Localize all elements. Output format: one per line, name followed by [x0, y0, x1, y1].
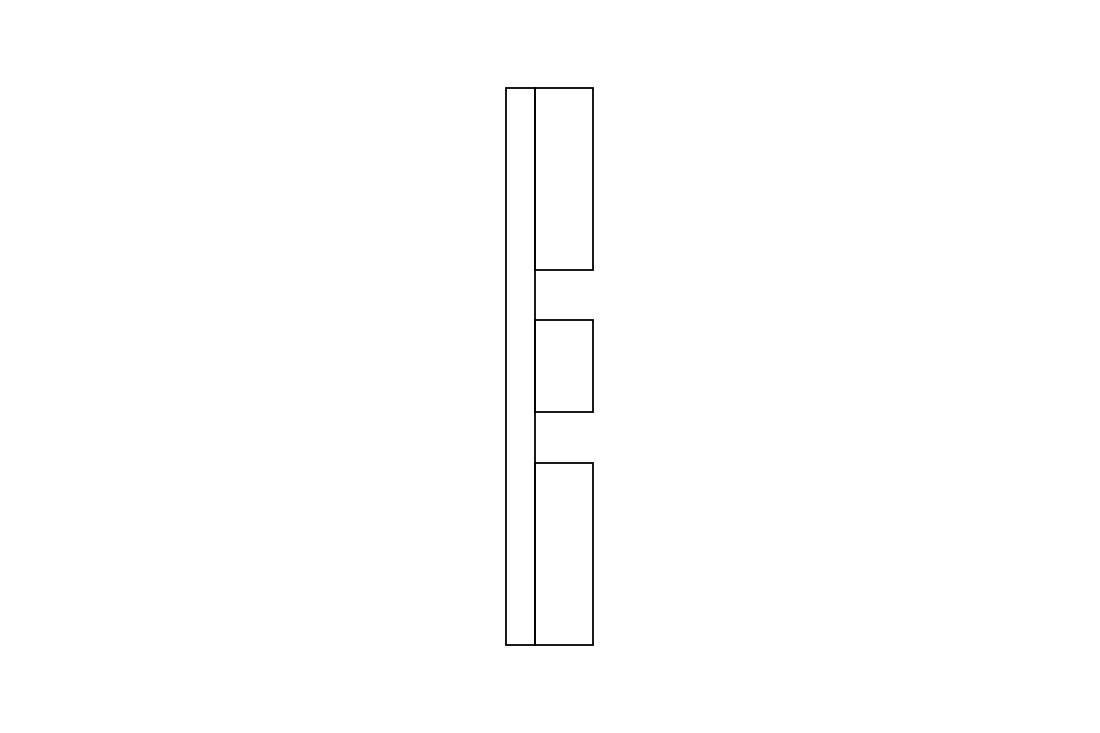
bottom-tooth: [535, 463, 593, 645]
middle-tooth: [535, 320, 593, 412]
drawing-canvas: [0, 0, 1100, 733]
top-tooth: [535, 88, 593, 270]
technical-drawing: [0, 0, 1100, 733]
back-plate: [506, 88, 535, 645]
